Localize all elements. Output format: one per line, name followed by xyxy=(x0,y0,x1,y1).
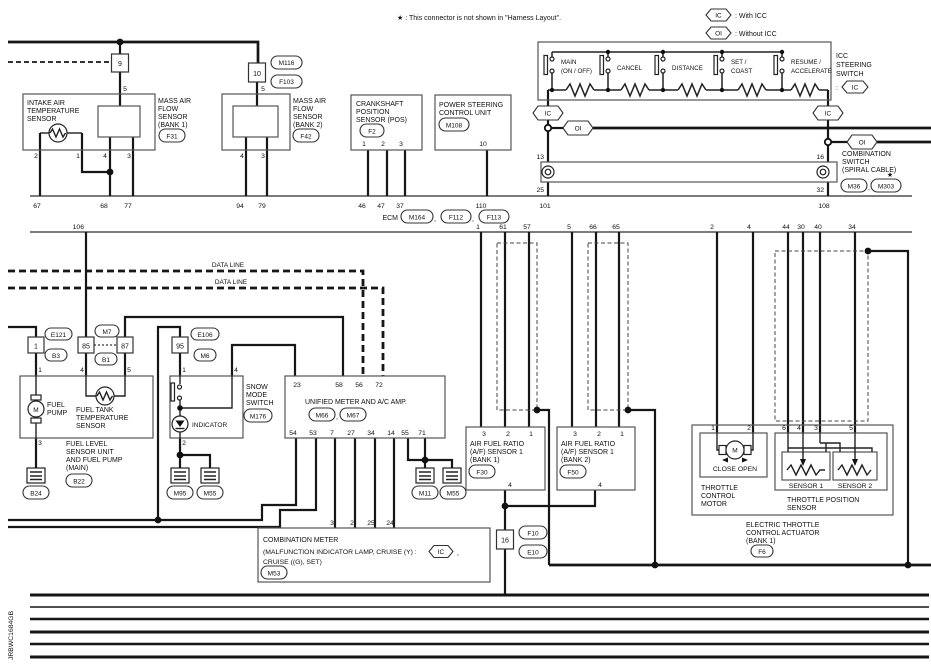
ecm-pin-4: 4 xyxy=(747,224,751,231)
inline-connector-95-label: 95 xyxy=(176,344,184,351)
meter-pin23: 23 xyxy=(293,382,301,389)
inline-connector-9-label: 9 xyxy=(118,61,122,68)
actuator-title-2: CONTROL ACTUATOR xyxy=(746,530,819,537)
mafs2-title-1: MASS AIR xyxy=(293,98,326,105)
mafs2-title-4: (BANK 2) xyxy=(293,122,323,129)
tps-sensor1-label: SENSOR 1 xyxy=(789,483,824,490)
af2-pin4: 4 xyxy=(598,482,602,489)
iat-thermistor-icon xyxy=(49,124,67,142)
ecm-pin-106: 106 xyxy=(73,224,85,231)
icc-sw-distance: DISTANCE xyxy=(672,65,703,72)
icc-colon: : xyxy=(836,85,838,92)
af2-pin2: 2 xyxy=(597,431,601,438)
connector-e10-label: E10 xyxy=(527,550,539,557)
ecm-pin-94: 94 xyxy=(236,203,244,210)
ground-icon-m55b xyxy=(443,468,461,483)
connector-b22-label: B22 xyxy=(73,479,85,486)
left-oi-label: OI xyxy=(575,126,582,133)
throttle-pin1: 1 xyxy=(711,425,715,432)
comb-switch-comma: , xyxy=(868,185,870,192)
fuel-pump-label-2: PUMP xyxy=(47,410,68,417)
ecm-pin-67: 67 xyxy=(33,203,41,210)
icc-sw-resume-2: ACCELERATE xyxy=(791,68,832,75)
ecm-pin-65: 65 xyxy=(612,224,620,231)
pscu-pin10: 10 xyxy=(479,141,487,148)
connector-b1-label: B1 xyxy=(102,357,110,364)
ground-icon-m11 xyxy=(416,468,434,483)
fuel-unit-label-2: SENSOR UNIT xyxy=(66,449,115,456)
ecm-pin-2: 2 xyxy=(710,224,714,231)
icc-sw-cancel: CANCEL xyxy=(617,65,643,72)
connector-f112-label: F112 xyxy=(449,215,464,222)
af1-title-1: AIR FUEL RATIO xyxy=(470,441,525,448)
ckp-title-1: CRANKSHAFT xyxy=(356,101,404,108)
snow-title-2: MODE xyxy=(246,392,267,399)
ckp-title-2: POSITION xyxy=(356,109,389,116)
connector-m53-label: M53 xyxy=(268,571,281,578)
fuel-pump-label-1: FUEL xyxy=(47,402,65,409)
connector-f31-label: F31 xyxy=(166,134,178,141)
icc-sw-set-1: SET / xyxy=(731,59,747,66)
comb-switch-pin13: 13 xyxy=(536,154,544,161)
fuel-pin5: 5 xyxy=(127,367,131,374)
ecm-pin-57: 57 xyxy=(523,224,531,231)
comb-meter-pin2: 2 xyxy=(350,520,354,527)
fuel-pin4: 4 xyxy=(80,367,84,374)
comb-switch-pin32: 32 xyxy=(816,187,824,194)
connector-e121-label: E121 xyxy=(51,332,67,339)
connector-f42-label: F42 xyxy=(300,134,312,141)
throttle-motor-label-2: CONTROL xyxy=(701,493,735,500)
snow-pin4: 4 xyxy=(234,367,238,374)
snow-title-3: SWITCH xyxy=(246,400,274,407)
legend-oi-desc: : Without ICC xyxy=(735,31,777,38)
connector-f30-label: F30 xyxy=(476,470,488,477)
icc-title-1: ICC xyxy=(836,53,848,60)
af1-pin1: 1 xyxy=(529,431,533,438)
mafs2-title-3: SENSOR xyxy=(293,114,323,121)
comb-meter-pin24: 24 xyxy=(386,520,394,527)
icc-sw-main-1: MAIN xyxy=(561,59,576,66)
connector-m164-label: M164 xyxy=(409,215,426,222)
iat-title-2: TEMPERATURE xyxy=(27,108,80,115)
comb-meter-pin25: 25 xyxy=(367,520,375,527)
ecm-pin-1: 1 xyxy=(476,224,480,231)
ecm-pin-44: 44 xyxy=(782,224,790,231)
meter-pin54: 54 xyxy=(289,430,297,437)
connector-m55a-label: M55 xyxy=(204,491,217,498)
ground-icon-b24 xyxy=(27,468,45,483)
snow-pin1: 1 xyxy=(182,367,186,374)
mafs1-pin3: 3 xyxy=(127,153,131,160)
iat-title-3: SENSOR xyxy=(27,116,57,123)
meter-pin53: 53 xyxy=(309,430,317,437)
ecm-pin-34: 34 xyxy=(848,224,856,231)
actuator-title-3: (BANK 1) xyxy=(746,538,776,545)
throttle-motor-label-1: THROTTLE xyxy=(701,485,738,492)
comb-switch-pin25: 25 xyxy=(536,187,544,194)
ecm-comma-2: , xyxy=(472,216,474,223)
snow-pin2: 2 xyxy=(182,440,186,447)
connector-f113-label: F113 xyxy=(487,215,502,222)
ecm-pin-5: 5 xyxy=(567,224,571,231)
af2-pin1: 1 xyxy=(620,431,624,438)
fuel-unit-label-1: FUEL LEVEL xyxy=(66,441,107,448)
meter-pin58: 58 xyxy=(335,382,343,389)
connector-f2-label: F2 xyxy=(368,129,376,136)
mafs1-pin4: 4 xyxy=(103,153,107,160)
connector-m55b-label: M55 xyxy=(447,491,460,498)
meter-title: UNIFIED METER AND A/C AMP. xyxy=(305,399,407,406)
iat-title-1: INTAKE AIR xyxy=(27,100,65,107)
meter-pin55: 55 xyxy=(401,430,409,437)
tps-pin4: 4 xyxy=(797,425,801,432)
inline-connector-10-label: 10 xyxy=(253,71,261,78)
ecm-pin-46: 46 xyxy=(358,203,366,210)
icc-title-3: SWITCH xyxy=(836,71,864,78)
connector-f6-label: F6 xyxy=(758,549,766,556)
connector-m303-label: M303 xyxy=(878,184,895,191)
comb-switch-pin16: 16 xyxy=(816,154,824,161)
data-line-label-1: DATA LINE xyxy=(212,262,245,269)
mafs1-title-2: FLOW xyxy=(158,106,179,113)
ground-icon-m55a xyxy=(201,468,219,483)
connector-m67-label: M67 xyxy=(347,413,360,420)
mafs1-title-3: SENSOR xyxy=(158,114,188,121)
connector-m11-label: M11 xyxy=(419,491,432,498)
mafs1-title-4: (BANK 1) xyxy=(158,122,188,129)
connector-b3-label: B3 xyxy=(52,353,60,360)
tps-sensor2-label: SENSOR 2 xyxy=(838,483,873,490)
pscu-title-1: POWER STEERING xyxy=(439,102,503,109)
meter-comma: , xyxy=(336,414,338,421)
comb-switch-title-2: SWITCH xyxy=(842,159,870,166)
ecm-pin-68: 68 xyxy=(100,203,108,210)
connector-m176-label: M176 xyxy=(250,414,267,421)
data-line-label-2: DATA LINE xyxy=(215,279,248,286)
meter-pin14: 14 xyxy=(387,430,395,437)
fuel-tank-label-3: SENSOR xyxy=(76,423,106,430)
left-ic-label: IC xyxy=(545,111,552,118)
icc-sw-set-2: COAST xyxy=(731,68,753,75)
af1-title-3: (BANK 1) xyxy=(470,457,500,464)
comb-meter-title-2: (MALFUNCTION INDICATOR LAMP, CRUISE (Y) … xyxy=(263,549,417,556)
ecm-pin-61: 61 xyxy=(499,224,507,231)
ckp-pin1: 1 xyxy=(362,141,366,148)
ecm-pin-110: 110 xyxy=(476,203,487,210)
inline-connector-16-label: 16 xyxy=(501,538,509,545)
icc-title-2: STEERING xyxy=(836,62,872,69)
mafs1-title-1: MASS AIR xyxy=(158,98,191,105)
mafs2-pin4: 4 xyxy=(240,153,244,160)
ckp-pin3: 3 xyxy=(399,141,403,148)
fuel-tank-label-2: TEMPERATURE xyxy=(76,415,129,422)
af2-title-3: (BANK 2) xyxy=(561,457,591,464)
comb-meter-pin3: 3 xyxy=(330,520,334,527)
connector-b24-label: B24 xyxy=(30,491,42,498)
mafs2-pin3: 3 xyxy=(261,153,265,160)
icc-sw-main-2: (ON / OFF) xyxy=(561,68,592,75)
comb-meter-title-1: COMBINATION METER xyxy=(263,537,338,544)
footnote: ★ : This connector is not shown in "Harn… xyxy=(397,14,561,22)
inline-connector-87-label: 87 xyxy=(121,344,129,351)
fuel-pump-m: M xyxy=(33,407,38,414)
connector-m66-label: M66 xyxy=(316,413,329,420)
wiring-diagram-page: ★ : This connector is not shown in "Harn… xyxy=(0,0,931,667)
right-ic-label: IC xyxy=(825,111,832,118)
comb-meter-comma: , xyxy=(457,550,459,557)
ecm-pin-79: 79 xyxy=(258,203,266,210)
af1-pin2: 2 xyxy=(506,431,510,438)
snow-title-1: SNOW xyxy=(246,384,268,391)
ground-icon-m95 xyxy=(171,468,189,483)
tps-title-1: THROTTLE POSITION xyxy=(787,497,859,504)
ecm-name: ECM xyxy=(382,215,398,222)
mafs1-pin1: 1 xyxy=(76,153,80,160)
actuator-title-1: ELECTRIC THROTTLE xyxy=(746,522,820,529)
doc-code: JRBWC1684GB xyxy=(8,610,15,660)
mafs2-title-2: FLOW xyxy=(293,106,314,113)
tps-pin3: 3 xyxy=(814,425,818,432)
m303-star: ★ xyxy=(887,171,893,179)
ecm-pin-108: 108 xyxy=(818,203,830,210)
comb-meter-title-3: CRUISE ((G), SET) xyxy=(263,559,322,566)
tps-pin6: 6 xyxy=(782,425,786,432)
connector-m108-label: M108 xyxy=(446,123,463,130)
indicator-lamp-icon xyxy=(172,416,188,432)
ecm-pin-77: 77 xyxy=(124,203,132,210)
connector-f10-label: F10 xyxy=(527,531,539,538)
fuel-pin1: 1 xyxy=(38,367,42,374)
mafs1-pin5: 5 xyxy=(123,86,127,93)
left-split-node xyxy=(545,125,551,131)
ecm-pin-66: 66 xyxy=(589,224,597,231)
af2-pin3: 3 xyxy=(573,431,577,438)
comb-meter-ic-label: IC xyxy=(438,549,445,556)
ckp-title-3: SENSOR (POS) xyxy=(356,117,407,124)
fuel-unit-label-3: AND FUEL PUMP xyxy=(66,457,123,464)
meter-pin27: 27 xyxy=(347,430,355,437)
throttle-pin2: 2 xyxy=(747,425,751,432)
ecm-comma-1: , xyxy=(434,216,436,223)
connector-m116-label: M116 xyxy=(279,60,295,67)
right-oi-label: OI xyxy=(859,140,866,147)
legend-oi-label: OI xyxy=(715,31,722,38)
ecm-pin-30: 30 xyxy=(797,224,805,231)
throttle-motor-m: M xyxy=(732,448,737,455)
connector-f103-label: F103 xyxy=(279,79,294,86)
connector-m95-label: M95 xyxy=(174,491,187,498)
ecm-pin-40: 40 xyxy=(814,224,822,231)
comb-switch-title-1: COMBINATION xyxy=(842,151,891,158)
ecm-pin-47: 47 xyxy=(377,203,385,210)
connector-f50-label: F50 xyxy=(567,470,579,477)
mafs2-pin5: 5 xyxy=(261,86,265,93)
meter-pin72: 72 xyxy=(375,382,383,389)
right-split-node xyxy=(825,139,831,145)
af2-title-1: AIR FUEL RATIO xyxy=(561,441,616,448)
connector-m36-label: M36 xyxy=(848,184,861,191)
fuel-tank-label-1: FUEL TANK xyxy=(76,407,114,414)
af1-title-2: (A/F) SENSOR 1 xyxy=(470,449,523,456)
ecm-pin-101: 101 xyxy=(539,203,551,210)
legend-ic-desc: : With ICC xyxy=(735,13,767,20)
meter-pin56: 56 xyxy=(355,382,363,389)
connector-m7-label: M7 xyxy=(102,329,111,336)
icc-sw-resume-1: RESUME / xyxy=(791,59,821,66)
throttle-close-open: CLOSE OPEN xyxy=(713,466,757,473)
tps-pin5: 5 xyxy=(849,425,853,432)
icc-tag-label: IC xyxy=(852,85,859,92)
mafs1-pin2: 2 xyxy=(34,153,38,160)
meter-pin71: 71 xyxy=(418,430,426,437)
af1-pin4: 4 xyxy=(508,482,512,489)
connector-m6-label: M6 xyxy=(200,353,209,360)
pscu-title-2: CONTROL UNIT xyxy=(439,110,492,117)
tps-title-2: SENSOR xyxy=(787,505,817,512)
ckp-pin2: 2 xyxy=(381,141,385,148)
fuel-unit-label-4: (MAIN) xyxy=(66,465,88,472)
meter-pin7: 7 xyxy=(330,430,334,437)
wiring-diagram: ★ : This connector is not shown in "Harn… xyxy=(0,0,931,667)
throttle-motor-label-3: MOTOR xyxy=(701,501,727,508)
meter-pin34: 34 xyxy=(367,430,375,437)
connector-e106-label: E106 xyxy=(197,332,213,339)
af2-title-2: (A/F) SENSOR 1 xyxy=(561,449,614,456)
inline-connector-1-label: 1 xyxy=(34,344,38,351)
af1-pin3: 3 xyxy=(482,431,486,438)
legend-ic-label: IC xyxy=(715,13,722,20)
fuel-pin3: 3 xyxy=(38,440,42,447)
inline-connector-85-label: 85 xyxy=(82,344,90,351)
snow-indicator-label: INDICATOR xyxy=(192,422,227,429)
ecm-pin-37: 37 xyxy=(396,203,404,210)
